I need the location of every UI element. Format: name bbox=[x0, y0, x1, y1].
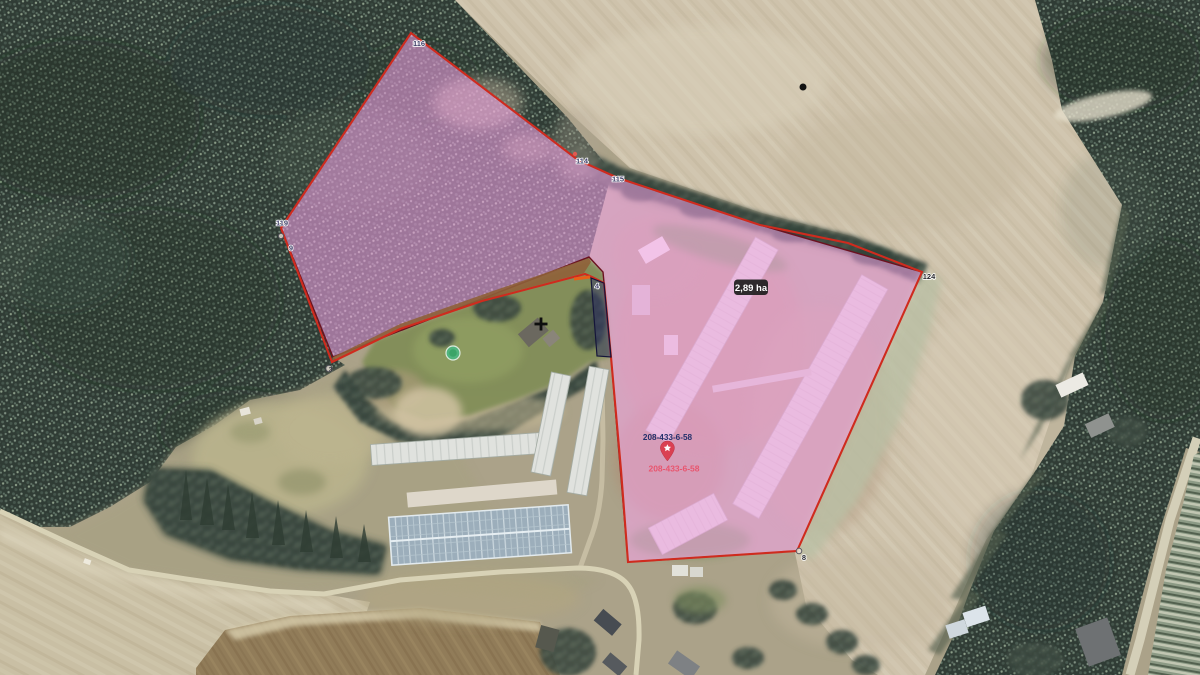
svg-text:114: 114 bbox=[576, 157, 589, 166]
svg-text:115: 115 bbox=[612, 175, 624, 184]
svg-text:2,89 ha: 2,89 ha bbox=[735, 283, 768, 294]
svg-text:3: 3 bbox=[329, 367, 333, 374]
svg-text:124: 124 bbox=[923, 272, 936, 281]
svg-text:8: 8 bbox=[802, 553, 806, 562]
svg-text:208-433-6-58: 208-433-6-58 bbox=[648, 464, 699, 474]
svg-text:9: 9 bbox=[289, 244, 293, 253]
svg-text:208-433-6-58: 208-433-6-58 bbox=[643, 433, 693, 442]
svg-text:119: 119 bbox=[276, 219, 288, 228]
svg-text:116: 116 bbox=[413, 39, 425, 48]
